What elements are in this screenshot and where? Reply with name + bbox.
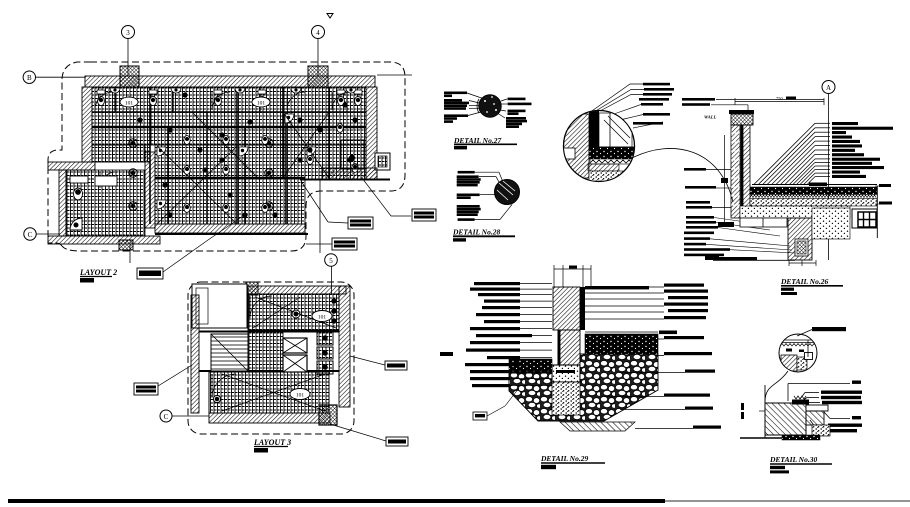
svg-text:DETAIL No.28: DETAIL No.28 xyxy=(452,228,500,237)
svg-text:DETAIL No.26: DETAIL No.26 xyxy=(780,277,828,286)
svg-text:101: 101 xyxy=(125,101,134,107)
svg-text:C: C xyxy=(28,231,33,239)
svg-text:LAYOUT 3: LAYOUT 3 xyxy=(253,438,291,447)
svg-text:750: 750 xyxy=(776,96,784,101)
svg-text:DETAIL No.29: DETAIL No.29 xyxy=(540,454,588,463)
svg-text:LAYOUT 2: LAYOUT 2 xyxy=(79,268,117,277)
svg-text:5: 5 xyxy=(329,257,333,265)
svg-text:4: 4 xyxy=(316,29,320,37)
svg-text:101: 101 xyxy=(257,101,266,107)
svg-text:DETAIL No.30: DETAIL No.30 xyxy=(769,455,817,464)
svg-text:101: 101 xyxy=(296,393,305,399)
svg-text:B: B xyxy=(27,74,32,82)
svg-text:C: C xyxy=(164,413,169,421)
svg-text:101: 101 xyxy=(318,315,327,321)
svg-text:WALL: WALL xyxy=(704,115,717,120)
svg-text:A: A xyxy=(826,84,831,92)
svg-text:3: 3 xyxy=(126,29,130,37)
